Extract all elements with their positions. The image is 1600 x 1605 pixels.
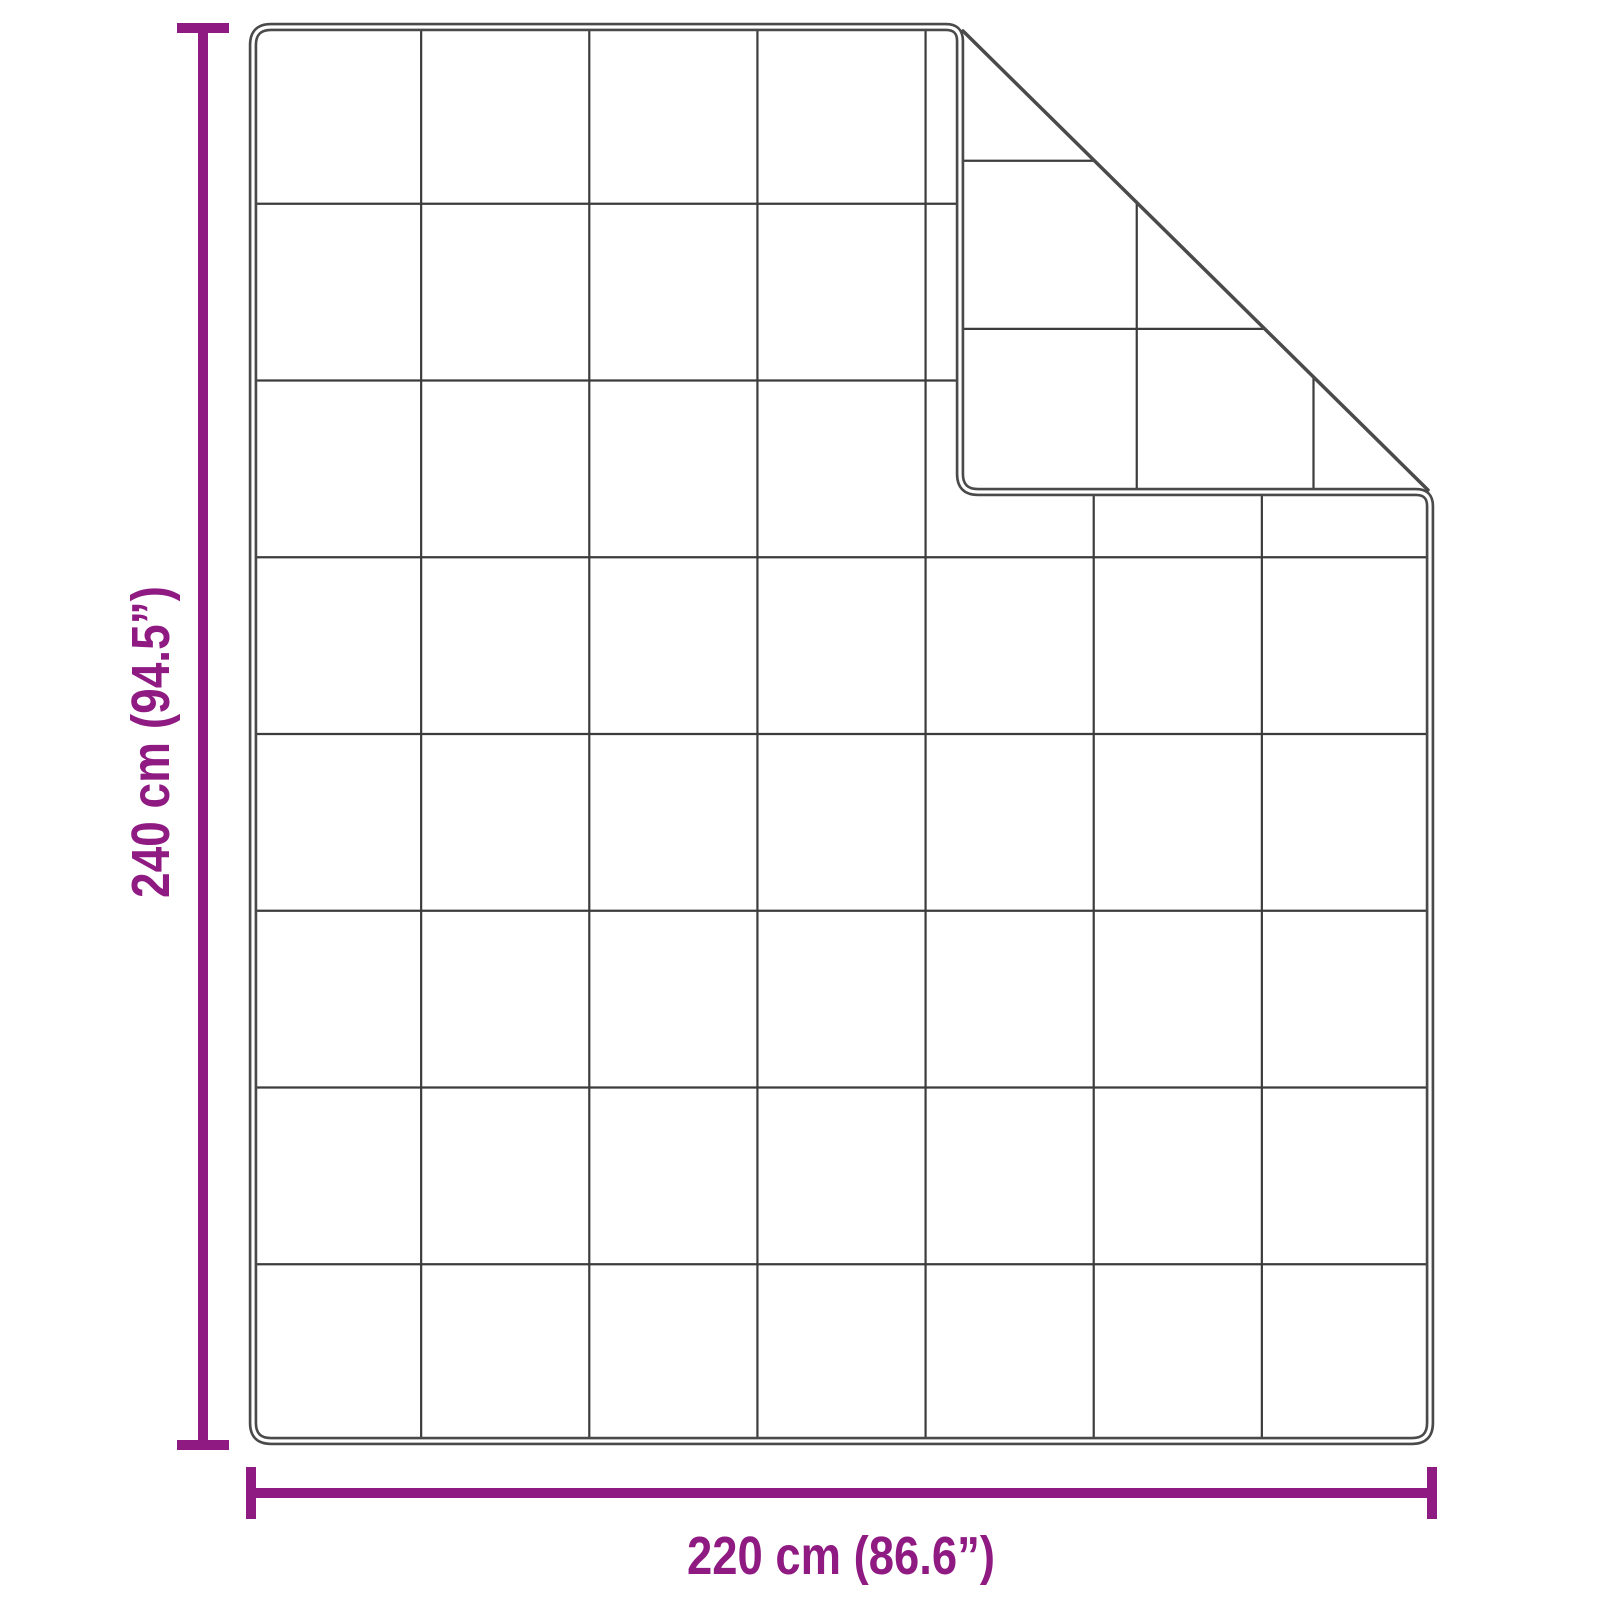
width-dimension-line <box>251 1467 1432 1519</box>
blanket-dimension-diagram: 240 cm (94.5”) 220 cm (86.6”) <box>0 0 1600 1600</box>
width-dimension-label: 220 cm (86.6”) <box>687 1526 995 1586</box>
height-dimension-label: 240 cm (94.5”) <box>121 586 181 898</box>
height-dimension-line <box>177 28 229 1445</box>
diagram-canvas: 240 cm (94.5”) 220 cm (86.6”) <box>0 0 1600 1600</box>
quilt-grid <box>253 27 1430 1441</box>
fold-line <box>963 31 1428 490</box>
